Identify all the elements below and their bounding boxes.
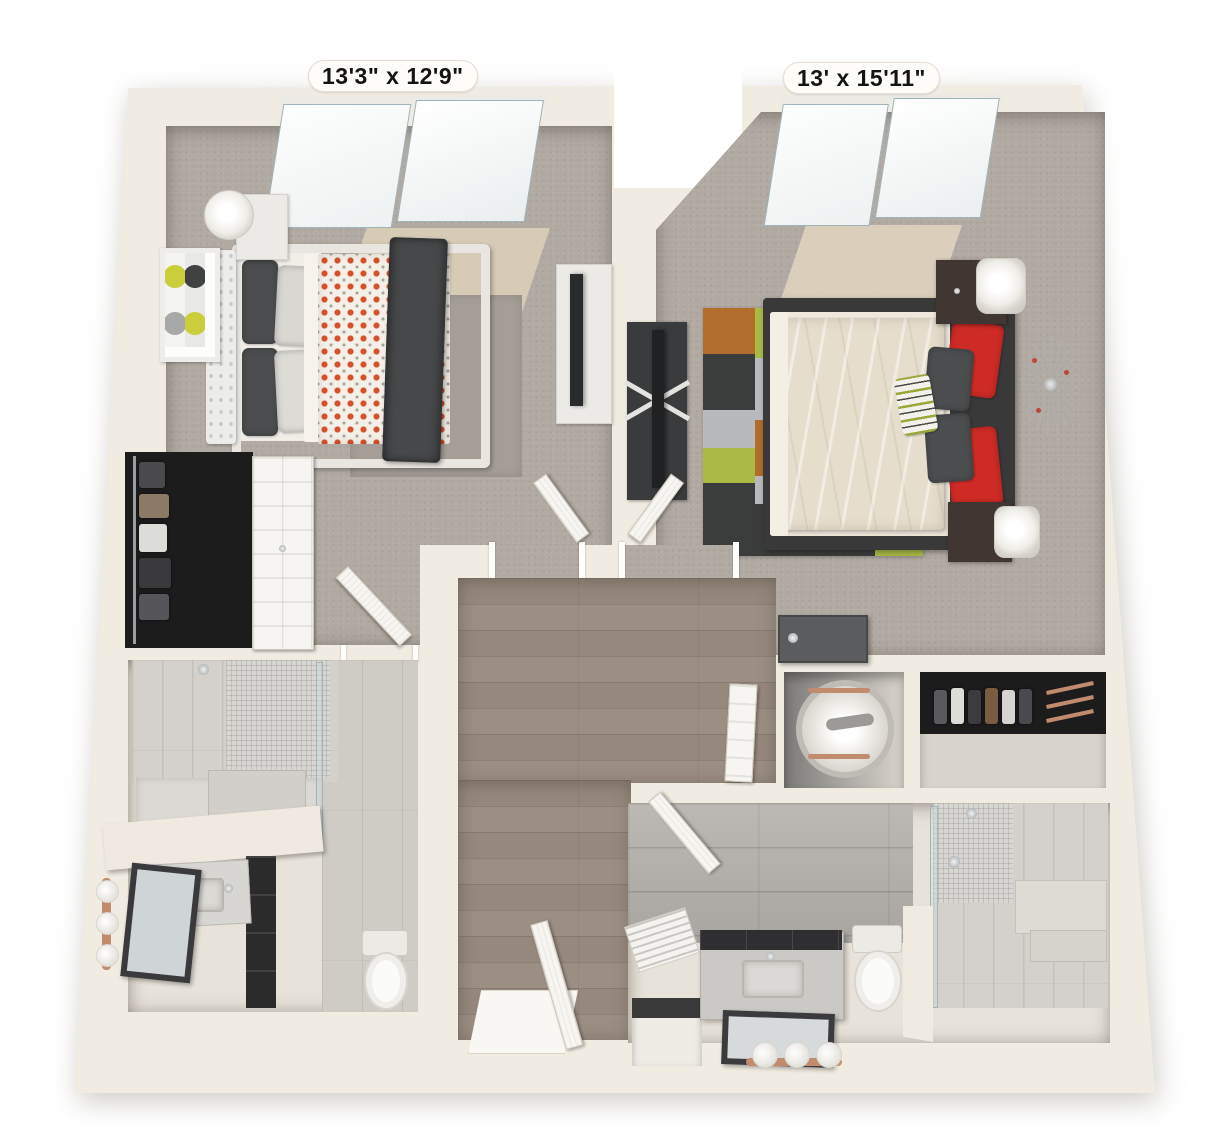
walk-in-closet xyxy=(920,672,1106,788)
hanging-clothes xyxy=(985,688,998,724)
bed-1-throw-blanket xyxy=(382,237,448,463)
rug-block xyxy=(703,354,755,410)
door-jamb xyxy=(579,542,585,580)
table-lamp xyxy=(976,258,1026,314)
door-knob xyxy=(279,545,286,552)
starburst-center xyxy=(1044,378,1057,391)
toilet xyxy=(854,950,902,1012)
hanging-clothes xyxy=(934,690,947,724)
window-pane xyxy=(764,104,889,226)
starburst-red-dot xyxy=(1032,358,1037,363)
sliding-door xyxy=(778,615,868,663)
bedroom-1-dimensions-label: 13'3" x 12'9" xyxy=(308,60,478,92)
door-jamb xyxy=(489,542,495,580)
hanging-clothes xyxy=(139,462,165,488)
art-tile xyxy=(185,300,205,347)
starburst-wall-art xyxy=(1022,336,1078,436)
shower-mosaic-accent xyxy=(226,660,330,778)
bed-1-pillow-dark xyxy=(242,348,278,436)
art-tile xyxy=(165,300,185,347)
water-heater-closet xyxy=(784,672,904,788)
rug-block xyxy=(703,448,755,483)
shower-door-handle xyxy=(948,856,960,868)
door-jamb xyxy=(733,542,739,580)
rolled-towel xyxy=(784,1042,810,1068)
art-tile xyxy=(165,253,185,300)
sink-basin xyxy=(742,960,804,998)
tv-screen xyxy=(652,330,664,488)
tv-console xyxy=(556,264,612,424)
closet-double-doors xyxy=(252,456,314,650)
hanging-clothes xyxy=(968,690,981,724)
faucet xyxy=(766,952,775,961)
closet-shelf-rod xyxy=(1046,709,1094,723)
door-jamb xyxy=(619,542,625,580)
rolled-towel xyxy=(96,880,119,903)
hanging-clothes xyxy=(139,494,169,518)
bed-1-pillow-dark xyxy=(242,260,278,344)
starburst-red-dot xyxy=(1036,408,1041,413)
rolled-towel xyxy=(96,912,119,935)
wall-art xyxy=(160,248,220,362)
shower-step xyxy=(1030,930,1107,962)
rug-block xyxy=(703,308,755,354)
bedroom-2-window xyxy=(762,94,1005,226)
closet-clothes-section xyxy=(920,672,1106,734)
closet-shelf-rod xyxy=(1046,695,1094,709)
rolled-towel xyxy=(752,1042,778,1068)
table-lamp xyxy=(204,190,254,240)
closet-rod xyxy=(133,456,136,644)
bedroom-2-dimensions-text: 13' x 15'11" xyxy=(797,65,926,92)
hanging-clothes xyxy=(139,594,169,620)
vanity-cabinet xyxy=(246,856,276,1008)
bed-2-duvet-fold xyxy=(770,312,788,536)
window-pane xyxy=(875,98,1000,218)
doorway-threshold xyxy=(624,545,734,579)
water-heater-pipe xyxy=(808,688,870,693)
faucet xyxy=(224,884,233,893)
bedroom-2-dimensions-label: 13' x 15'11" xyxy=(783,62,940,94)
door-knob xyxy=(788,633,798,643)
art-tile xyxy=(185,253,205,300)
shower-half-wall xyxy=(903,906,933,1042)
closet-interior xyxy=(125,452,253,648)
drawer-handle xyxy=(954,288,960,294)
toilet-tank xyxy=(852,925,902,953)
hanging-clothes xyxy=(951,688,964,724)
hanging-clothes xyxy=(139,524,167,552)
closet-shelf-rod xyxy=(1046,681,1094,695)
toilet xyxy=(364,952,408,1010)
water-heater-pipe xyxy=(808,754,870,759)
window-pane xyxy=(397,100,544,222)
water-heater xyxy=(796,680,894,778)
linen-closet-nook xyxy=(632,998,702,1066)
hanging-clothes xyxy=(139,558,171,588)
vanity-top-dark xyxy=(700,930,842,950)
floor-plan: 13'3" x 12'9" 13' x 15'11" xyxy=(0,0,1212,1136)
shower-head xyxy=(966,808,977,819)
hanging-clothes xyxy=(1002,690,1015,724)
shower-head xyxy=(198,664,209,675)
hanging-clothes xyxy=(1019,689,1032,724)
rolled-towel xyxy=(816,1042,842,1068)
doorway-threshold xyxy=(494,545,580,579)
bedroom-1-window xyxy=(259,96,548,230)
utility-closet-door xyxy=(724,683,757,782)
vanity-mirror xyxy=(120,863,202,984)
rug-block xyxy=(703,410,755,448)
rolled-towel xyxy=(96,944,119,967)
starburst-red-dot xyxy=(1064,370,1069,375)
shower-bench xyxy=(1015,880,1107,934)
tv-screen xyxy=(570,274,583,406)
shelf-edge xyxy=(632,998,702,1018)
table-lamp xyxy=(994,506,1040,558)
bedroom-1-dimensions-text: 13'3" x 12'9" xyxy=(322,63,464,90)
